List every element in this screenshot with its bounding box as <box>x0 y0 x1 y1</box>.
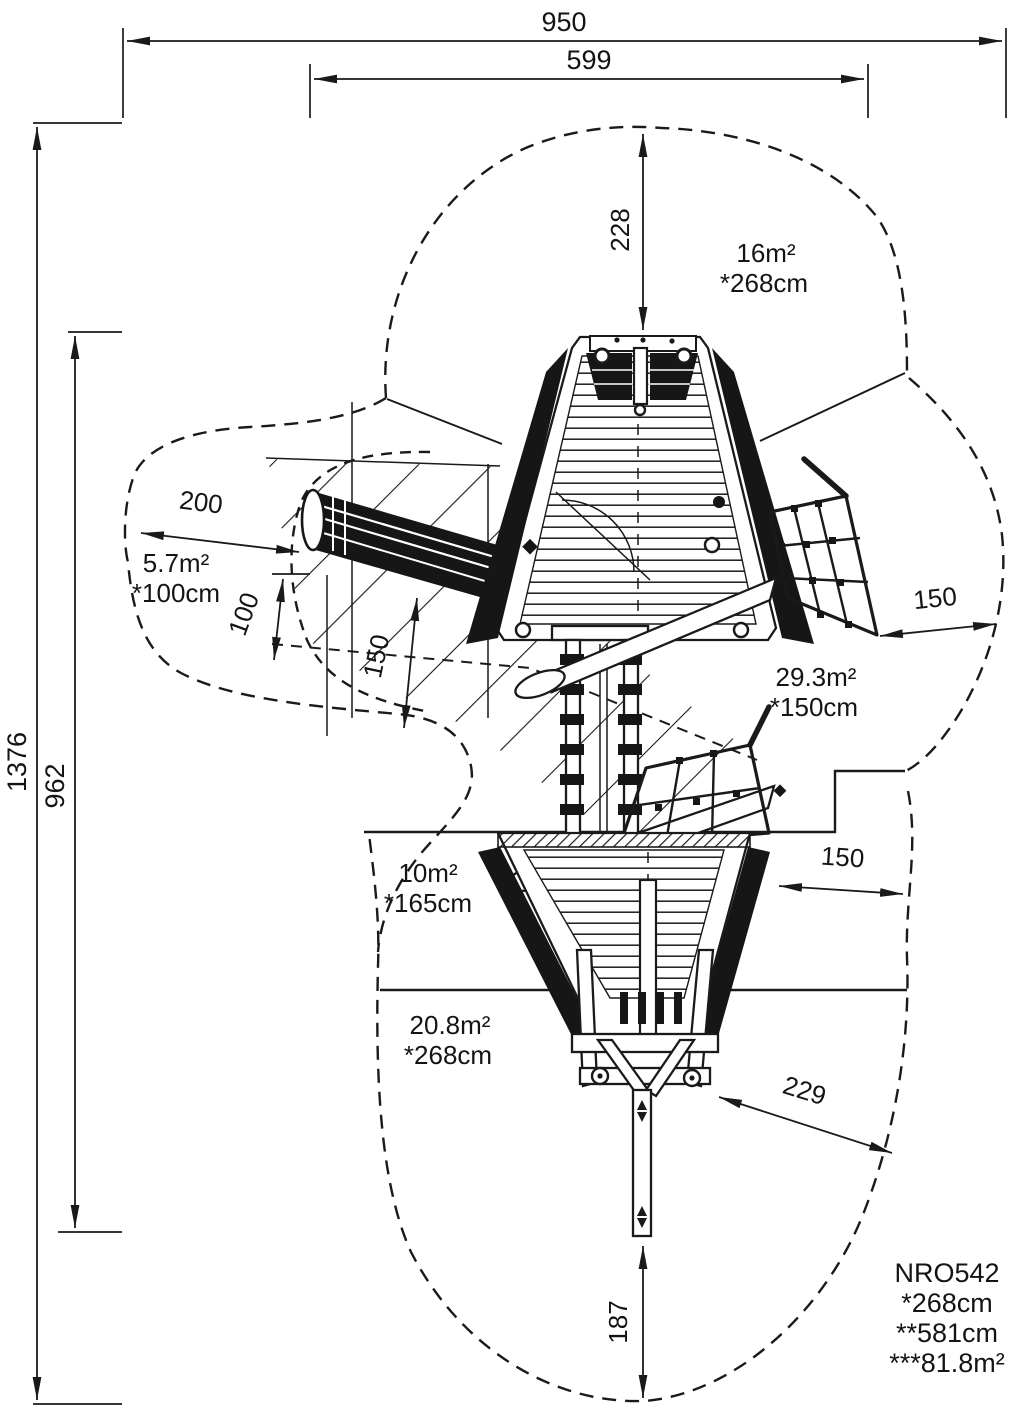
dim-structure-width: 599 <box>310 45 868 118</box>
zone-bottom-height: *268cm <box>404 1040 492 1070</box>
dim-lower-right-clearance-label: 150 <box>820 841 865 874</box>
technical-drawing-page: 950 599 1376 962 228 200 <box>0 0 1024 1420</box>
zone-bottom-area: 20.8m² <box>410 1010 491 1040</box>
plan-drawing: 950 599 1376 962 228 200 <box>0 0 1024 1420</box>
dim-overall-depth-label: 1376 <box>2 732 32 792</box>
stern-rail-band <box>498 833 750 847</box>
dim-upper-right-clearance-label: 150 <box>912 581 958 615</box>
bow-ring-left <box>595 349 609 363</box>
dim-lower-right-clearance: 150 <box>779 841 903 894</box>
lower-ship <box>478 833 770 1096</box>
dim-structure-width-label: 599 <box>566 45 611 75</box>
zone-right-area: 29.3m² <box>776 662 857 692</box>
radiating-line-right <box>760 373 905 441</box>
zone-top-area: 16m² <box>736 238 796 268</box>
product-code: NRO542 <box>894 1258 999 1288</box>
dim-structure-depth: 962 <box>40 332 122 1232</box>
bowsprit <box>633 1090 651 1236</box>
slide-lower-mount <box>774 784 787 797</box>
product-spec-area: ***81.8m² <box>889 1348 1005 1378</box>
dim-tube-zone-length-label: 200 <box>178 485 225 520</box>
dim-overall-width: 950 <box>123 7 1006 118</box>
dim-bottom-clearance: 187 <box>603 1246 643 1398</box>
bow-ring-right <box>677 349 691 363</box>
zone-middle-height: *165cm <box>384 888 472 918</box>
stern-beam-1 <box>572 1034 718 1052</box>
product-spec-height: *268cm <box>901 1288 993 1318</box>
product-info: NRO542 *268cm **581cm ***81.8m² <box>889 1258 1005 1378</box>
dim-top-clearance: 228 <box>605 134 643 330</box>
zone-top-height: *268cm <box>720 268 808 298</box>
tube-end-cap <box>302 490 324 550</box>
dim-tube-zone-width-label: 100 <box>222 588 265 639</box>
dim-overall-width-label: 950 <box>541 7 586 37</box>
dim-stern-clearance-label: 229 <box>779 1070 829 1111</box>
zone-left-area: 5.7m² <box>143 548 210 578</box>
stern-ring-left <box>516 623 530 637</box>
mast-pole <box>634 348 647 404</box>
zone-middle-area: 10m² <box>398 858 458 888</box>
mast-base-ring <box>635 405 645 415</box>
porthole-2 <box>705 538 719 552</box>
product-spec-length: **581cm <box>896 1318 998 1348</box>
dim-structure-depth-label: 962 <box>40 763 70 808</box>
porthole-1 <box>713 496 725 508</box>
radiating-line-left <box>387 399 502 444</box>
zone-left-height: *100cm <box>132 578 220 608</box>
dim-top-clearance-label: 228 <box>605 208 635 251</box>
dim-upper-right-clearance: 150 <box>880 581 996 636</box>
dim-bottom-clearance-label: 187 <box>603 1300 633 1343</box>
dim-stern-clearance: 229 <box>719 1070 892 1153</box>
boundary-right-upper <box>906 378 1003 771</box>
zone-right-height: *150cm <box>770 692 858 722</box>
stern-ring-right <box>734 623 748 637</box>
